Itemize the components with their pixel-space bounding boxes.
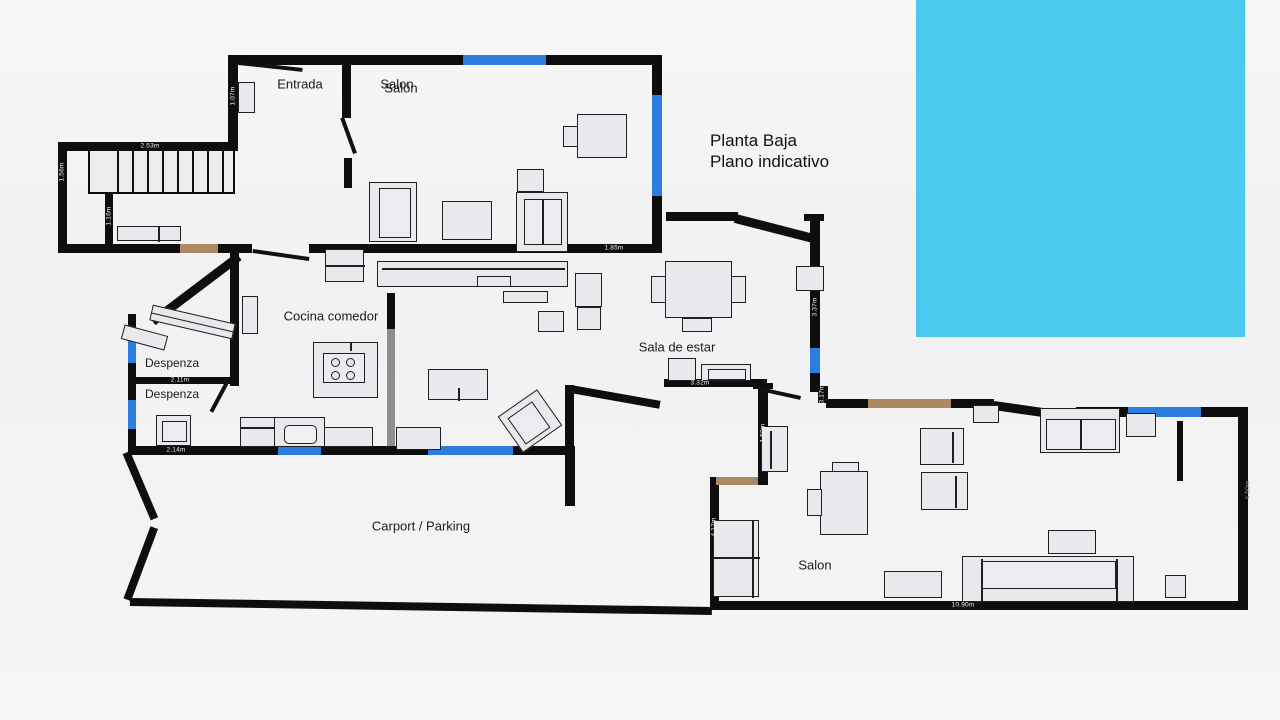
stair-riser: [162, 151, 164, 192]
window-marker: [652, 95, 662, 196]
dimension-label: 4.17m: [711, 517, 718, 536]
furniture-detail: [752, 521, 754, 598]
dimension-label: 1.85m: [604, 245, 623, 252]
door-leaf: [209, 379, 230, 413]
door-marker: [180, 244, 218, 253]
stair-riser: [177, 151, 179, 192]
furniture-detail: [350, 343, 352, 351]
room-label-carport: Carport / Parking: [372, 519, 470, 534]
furniture-detail: [1116, 559, 1118, 601]
furniture-detail: [323, 353, 365, 383]
furniture-detail: [346, 358, 355, 367]
wall-segment: [228, 55, 662, 65]
room-label-sala-de-estar: Sala de estar: [639, 340, 716, 355]
furniture-detail: [982, 561, 1116, 589]
dimension-label: 3.17m: [819, 384, 826, 403]
furniture-tv-bench: [428, 369, 488, 400]
furniture-detail: [152, 313, 235, 333]
dimension-label: 3.37m: [812, 297, 819, 316]
room-label-salon-top-alt: Salón: [384, 81, 417, 96]
furniture-side-table: [1126, 413, 1156, 437]
furniture-desk-chair: [807, 489, 822, 516]
dimension-label: 1.54m: [566, 312, 573, 331]
room-label-cocina: Cocina comedor: [284, 309, 379, 324]
furniture-detail: [326, 265, 365, 267]
room-label-entrada: Entrada: [277, 77, 323, 92]
stair-riser: [117, 151, 119, 192]
furniture-loveseat: [1040, 408, 1120, 453]
furniture-bench: [117, 226, 181, 241]
furniture-detail: [331, 358, 340, 367]
furniture-detail: [379, 188, 411, 238]
furniture-shelf-box: [477, 276, 511, 287]
wall-segment-diagonal: [124, 526, 158, 601]
furniture-tall-cabinet: [242, 296, 258, 334]
furniture-shelf: [503, 291, 548, 303]
furniture-chair: [682, 318, 712, 332]
floor-plan-canvas: EntradaSalonSalónCocina comedorSala de e…: [0, 0, 1280, 720]
furniture-side-table: [1165, 575, 1186, 598]
furniture-counter: [324, 427, 373, 447]
furniture-coffee-table: [1048, 530, 1096, 554]
dimension-label: 4.50m: [1245, 480, 1252, 499]
furniture-detail: [458, 388, 460, 401]
room-label-despenza-1: Despenza: [145, 356, 199, 370]
plan-title: Planta Baja Plano indicativo: [710, 130, 829, 172]
furniture-sofa: [369, 182, 417, 242]
dimension-label: 1.50m: [760, 423, 767, 442]
furniture-desk-chair: [563, 126, 578, 147]
furniture-chair: [651, 276, 666, 303]
dimension-label: 2.14m: [166, 447, 185, 454]
furniture-detail: [1080, 419, 1082, 450]
furniture-detail: [284, 425, 317, 444]
wall-segment: [710, 601, 1248, 610]
furniture-side-table: [884, 571, 942, 598]
furniture-detail: [162, 421, 187, 442]
furniture-detail: [331, 371, 340, 380]
furniture-appliance: [156, 415, 191, 446]
furniture-shelf: [973, 405, 999, 423]
furniture-sofa: [962, 556, 1134, 602]
furniture-fridge: [325, 249, 364, 282]
window-marker: [128, 400, 136, 429]
furniture-wardrobe: [238, 82, 255, 113]
furniture-desk: [577, 114, 627, 158]
furniture-chair: [731, 276, 746, 303]
furniture-counter: [396, 427, 441, 450]
wall-segment: [1238, 407, 1248, 610]
furniture-armchair: [516, 192, 568, 252]
wall-segment: [1177, 421, 1183, 481]
stair-riser: [222, 151, 224, 192]
window-marker: [463, 55, 546, 65]
furniture-detail: [770, 431, 772, 469]
stair-riser: [147, 151, 149, 192]
furniture-armchair: [498, 389, 563, 453]
furniture-sideboard: [377, 261, 568, 287]
furniture-side-table: [517, 169, 544, 192]
dimension-label: 2.72m: [473, 288, 492, 295]
furniture-detail: [708, 369, 746, 380]
furniture-armchair: [921, 472, 968, 510]
door-marker: [716, 477, 758, 485]
furniture-chair: [538, 311, 564, 332]
floor-plan-layers: EntradaSalonSalónCocina comedorSala de e…: [0, 0, 1280, 720]
wall-segment-diagonal: [570, 385, 661, 409]
plan-title-line2: Plano indicativo: [710, 151, 829, 172]
furniture-detail: [507, 401, 550, 444]
furniture-detail: [382, 268, 565, 270]
furniture-detail: [952, 432, 954, 463]
wall-segment: [387, 293, 395, 329]
furniture-dining-table: [665, 261, 732, 318]
stair-riser: [132, 151, 134, 192]
furniture-sink-unit: [274, 417, 325, 447]
furniture-desk-item: [832, 462, 859, 472]
wall-segment: [344, 158, 352, 188]
furniture-detail: [542, 199, 544, 245]
wall-segment-diagonal: [130, 598, 712, 615]
dimension-label: 2.53m: [140, 143, 159, 150]
window-marker: [278, 446, 321, 455]
dimension-label: 1.07m: [230, 86, 237, 105]
stair-riser: [207, 151, 209, 192]
furniture-cabinet: [240, 417, 275, 447]
dimension-label: 1.16m: [106, 206, 113, 225]
furniture-coffee-table: [442, 201, 492, 240]
furniture-detail: [241, 427, 276, 429]
staircase: [88, 149, 235, 194]
furniture-detail: [158, 227, 160, 242]
plan-title-line1: Planta Baja: [710, 130, 829, 151]
wall-segment: [58, 142, 67, 253]
wall-segment-diagonal: [734, 214, 814, 243]
door-marker: [868, 399, 951, 408]
wall-segment: [565, 385, 574, 449]
furniture-cabinet: [701, 364, 751, 381]
furniture-desk: [820, 471, 868, 535]
door-leaf: [340, 117, 357, 154]
furniture-armchair: [920, 428, 964, 465]
furniture-tall-cabinet: [713, 520, 759, 597]
window-marker: [810, 348, 820, 373]
dimension-label: 1.56m: [59, 162, 66, 181]
dimension-label: 10.90m: [952, 602, 975, 609]
wall-segment: [230, 252, 239, 386]
furniture-detail: [346, 371, 355, 380]
wall-segment: [666, 212, 738, 221]
wall-segment-diagonal: [123, 451, 158, 520]
furniture-chair: [577, 307, 601, 330]
room-label-despenza-2: Despenza: [145, 387, 199, 401]
stair-riser: [192, 151, 194, 192]
furniture-desk: [575, 273, 602, 307]
dimension-label: 3.32m: [690, 380, 709, 387]
furniture-chair: [796, 266, 824, 291]
dimension-label: 2.11m: [171, 377, 190, 384]
wall-segment: [342, 55, 351, 118]
wall-segment: [565, 446, 575, 506]
furniture-detail: [955, 476, 957, 508]
furniture-kitchen-island: [313, 342, 378, 398]
furniture-cabinet: [668, 358, 696, 381]
room-label-salon-bottom: Salon: [798, 558, 831, 573]
